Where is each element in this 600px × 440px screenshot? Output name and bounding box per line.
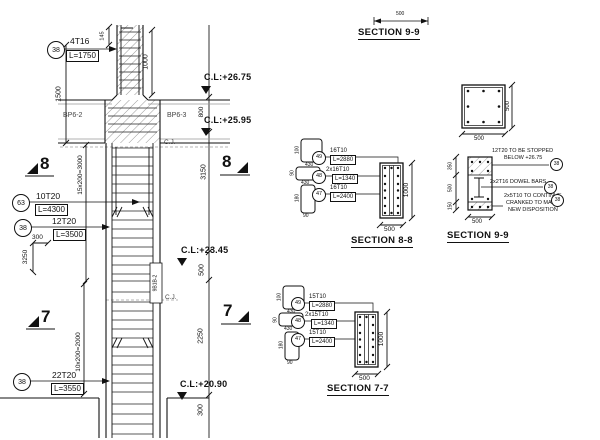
link-shape-dim: 430: [284, 327, 292, 332]
beam-label-right: BP6-3: [167, 112, 186, 119]
bar-length-box: L=4300: [35, 204, 68, 216]
bar-mark-circle: 38: [47, 41, 65, 59]
bar-length-box: L=1750: [66, 50, 99, 62]
note-mark-circle: 38: [550, 158, 563, 171]
bar-callout-label: 4T16: [70, 37, 89, 46]
link-mark-circle: 48: [312, 170, 326, 184]
section-title-7-7: SECTION 7-7: [327, 383, 389, 396]
section-dim-width: 500: [384, 227, 395, 234]
bar-mark-circle: 38: [14, 219, 32, 237]
section-title-9-9: SECTION 9-9: [447, 230, 509, 243]
bar-length-box: L=3500: [53, 229, 86, 241]
link-length-box: L=1340: [332, 174, 358, 184]
link-length-box: L=1340: [311, 319, 337, 329]
dim-500: 500: [199, 264, 206, 276]
note-line: BELOW +26.75: [504, 156, 542, 162]
level-label: C.L:+23.45: [181, 246, 228, 255]
link-shape-dim: 180: [296, 194, 301, 202]
link-label: 15T10: [309, 294, 326, 300]
link-shape-dim: 90: [287, 361, 293, 366]
dim-1500: 1500: [56, 86, 63, 102]
level-label: C.L:+26.75: [204, 73, 251, 82]
beam-label-left: BP6-2: [63, 112, 82, 119]
link-shape-dim: 430: [287, 310, 295, 315]
link-label: 16T10: [330, 148, 347, 154]
link-shape-dim: 430: [305, 163, 313, 168]
note-line: 12T20 TO BE STOPPED: [492, 149, 553, 155]
link-shape-dim: 100: [278, 293, 283, 301]
bar-callout-label: 22T20: [52, 371, 76, 380]
link-length-box: L=2880: [330, 155, 356, 165]
construction-joint-label: C.J.: [165, 295, 177, 302]
bend-width-dim: 300: [32, 235, 43, 242]
bar-length-box: L=3550: [51, 383, 84, 395]
section-dim-width: 500: [359, 376, 370, 383]
level-label: C.L:+20.90: [180, 380, 227, 389]
dim-300: 300: [198, 404, 205, 416]
link-label: 16T10: [330, 185, 347, 191]
section-title-8-8: SECTION 8-8: [351, 235, 413, 248]
dim-2250: 2250: [198, 328, 205, 344]
section-dim-height: 1000: [404, 183, 411, 197]
link-mark-circle: 47: [291, 333, 305, 347]
link-label: 2x16T10: [326, 167, 349, 173]
stack-dim-width: 500: [472, 219, 482, 225]
dim-145: 145: [100, 31, 106, 40]
dim-zone8-spacing: 15x200=3000: [78, 155, 85, 195]
bar-callout-label: 12T20: [52, 217, 76, 226]
link-length-box: L=2880: [309, 301, 335, 311]
section-marker-7-right: 7: [223, 302, 232, 319]
dim-3150: 3150: [201, 164, 208, 180]
splice-tag: 9B1B-2: [154, 275, 159, 292]
section-title-top: SECTION 9-9: [358, 27, 420, 40]
note-line: NEW DISPOSITION: [508, 208, 558, 214]
square-dim-height: 500: [505, 101, 511, 111]
section-marker-7-left: 7: [41, 308, 50, 325]
drawing-canvas: 38 4T16 L=1750 63 10T20 L=4300 38 12T20 …: [0, 0, 600, 440]
square-dim-width: 500: [474, 136, 484, 142]
dim-1000: 1000: [143, 54, 150, 70]
section-dim-height: 1000: [379, 332, 386, 346]
link-shape-dim: 90: [274, 317, 279, 323]
link-shape-dim: 90: [291, 170, 296, 176]
bar-callout-label: 10T20: [36, 192, 60, 201]
link-mark-circle: 47: [312, 188, 326, 202]
drawing-linework: [0, 0, 600, 440]
link-shape-dim: 180: [280, 341, 285, 349]
note-line: 2x2T16 DOWEL BARS: [490, 180, 546, 186]
link-length-box: L=2400: [330, 192, 356, 202]
link-label: 2x15T10: [305, 312, 328, 318]
link-mark-circle: 49: [312, 151, 326, 165]
link-shape-dim: 430: [301, 181, 309, 186]
link-mark-circle: 48: [291, 315, 305, 329]
stack-dim-150: 150: [449, 202, 454, 210]
construction-joint-label: C.J.: [164, 140, 176, 147]
stack-dim-500: 500: [449, 184, 454, 192]
section-marker-8-right: 8: [222, 153, 231, 170]
level-label: C.L:+25.95: [204, 116, 251, 125]
top-dim-label: 500: [396, 12, 404, 17]
note-mark-circle: 38: [551, 194, 564, 207]
dim-zone7-spacing: 10x200=2000: [76, 332, 83, 372]
link-shape-dim: 100: [296, 146, 301, 154]
section-marker-8-left: 8: [40, 155, 49, 172]
stack-dim-350: 350: [449, 162, 454, 170]
link-label: 15T10: [309, 330, 326, 336]
bend-height-dim: 3250: [23, 250, 30, 264]
link-shape-dim: 90: [303, 214, 309, 219]
link-length-box: L=2400: [309, 337, 335, 347]
bar-mark-circle: 63: [12, 194, 30, 212]
bar-mark-circle: 38: [13, 373, 31, 391]
